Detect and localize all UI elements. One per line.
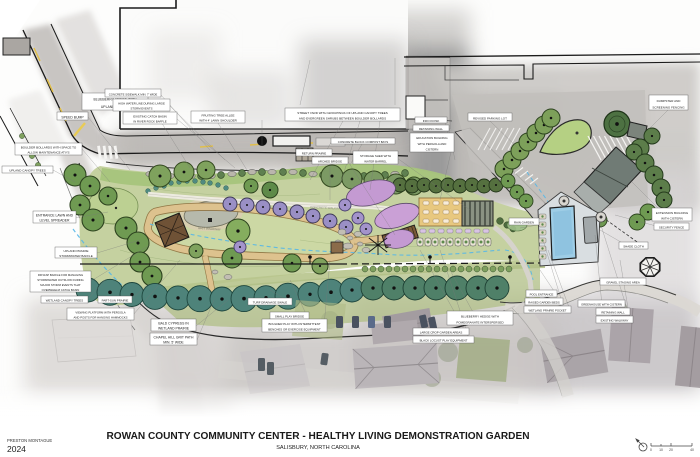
svg-text:WITH 4’ LAWN SHOULDER: WITH 4’ LAWN SHOULDER: [199, 119, 237, 123]
svg-text:UPLAND PRAIRIE: UPLAND PRAIRIE: [63, 249, 88, 253]
svg-text:ROWAN COUNTY COMMUNITY CENTER: ROWAN COUNTY COMMUNITY CENTER - HEALTHY …: [106, 431, 529, 442]
svg-text:10: 10: [659, 448, 663, 452]
svg-text:BENCHES OR EXERCISE EQUIPMENT: BENCHES OR EXERCISE EQUIPMENT: [268, 328, 321, 332]
svg-text:CISTERN: CISTERN: [426, 148, 439, 152]
svg-text:FRUITING TREE ALLEE: FRUITING TREE ALLEE: [202, 114, 235, 118]
svg-text:ALLOW MAINTENANCE ATV’S: ALLOW MAINTENANCE ATV’S: [27, 151, 69, 155]
svg-text:PART-SUN PRAIRIE: PART-SUN PRAIRIE: [102, 299, 129, 303]
svg-text:SMALL PLAY BRIDGE: SMALL PLAY BRIDGE: [275, 315, 304, 319]
svg-text:CONCRETE BLOCK COMPOST BAYS: CONCRETE BLOCK COMPOST BAYS: [338, 140, 389, 144]
svg-text:RETAINING WALL: RETAINING WALL: [601, 311, 625, 315]
svg-text:POMEGRANATE INTERSPERSED: POMEGRANATE INTERSPERSED: [456, 321, 504, 325]
svg-text:MIN. 5’ WIDE: MIN. 5’ WIDE: [163, 341, 184, 345]
svg-text:SPEED BUMP: SPEED BUMP: [61, 116, 84, 120]
svg-text:BLUEBERRY HEDGE WITH: BLUEBERRY HEDGE WITH: [461, 314, 499, 318]
svg-text:OVERWHELM CATCH BASIN: OVERWHELM CATCH BASIN: [42, 288, 80, 292]
svg-text:0: 0: [650, 448, 652, 452]
svg-text:RAISED GARDEN BEDS: RAISED GARDEN BEDS: [528, 301, 560, 305]
svg-text:RETAINING WALL: RETAINING WALL: [419, 127, 443, 131]
svg-text:GRAVEL STAGING AREA: GRAVEL STAGING AREA: [606, 281, 640, 285]
svg-text:BOULDER PLAY WITH INTERMITTENT: BOULDER PLAY WITH INTERMITTENT: [268, 322, 320, 326]
svg-text:EDUCATION BUILDING: EDUCATION BUILDING: [416, 136, 448, 140]
svg-text:TURF DRAINAGE SWALE: TURF DRAINAGE SWALE: [253, 301, 287, 305]
svg-text:EXTENSION BUILDING: EXTENSION BUILDING: [656, 211, 689, 215]
svg-text:WETLAND PRAIRIE: WETLAND PRAIRIE: [158, 327, 190, 331]
svg-text:EXISTING WALKWAY: EXISTING WALKWAY: [601, 319, 629, 323]
svg-text:POOL ENTRANCE: POOL ENTRANCE: [530, 293, 554, 297]
svg-text:40: 40: [690, 448, 694, 452]
svg-text:STORAGE SHED WITH: STORAGE SHED WITH: [360, 154, 391, 158]
svg-text:RETURN PRAIRIE: RETURN PRAIRIE: [302, 152, 326, 156]
svg-text:RAIN GARDEN: RAIN GARDEN: [514, 221, 534, 225]
svg-text:AND EVERGREEN SHRUBS BETWEEN B: AND EVERGREEN SHRUBS BETWEEN BOULDER BOL…: [299, 117, 386, 121]
svg-text:WETLAND CANOPY TREES: WETLAND CANOPY TREES: [46, 299, 84, 303]
svg-text:SHADE CLOTH: SHADE CLOTH: [623, 245, 644, 249]
svg-text:UPLAND CANOPY TREES: UPLAND CANOPY TREES: [9, 169, 45, 173]
svg-text:LEVEL SPREADER: LEVEL SPREADER: [39, 219, 70, 223]
svg-text:BLACK LOCUST PLAY EQUIPMENT: BLACK LOCUST PLAY EQUIPMENT: [420, 339, 468, 343]
svg-text:CONCRETE SIDEWALK MIN. 7’ WIDE: CONCRETE SIDEWALK MIN. 7’ WIDE: [109, 93, 158, 97]
svg-text:SCREENING FENCING: SCREENING FENCING: [652, 105, 685, 109]
svg-text:INFO KIOSK: INFO KIOSK: [423, 119, 440, 123]
svg-text:ENTRANCE LAWN AND: ENTRANCE LAWN AND: [36, 214, 74, 218]
svg-text:PRESTON MONTAGUE: PRESTON MONTAGUE: [7, 438, 52, 443]
svg-text:MAJOR STORM EVENTS THAT: MAJOR STORM EVENTS THAT: [40, 283, 81, 287]
svg-text:WETLAND PRAIRIE POCKET: WETLAND PRAIRIE POCKET: [529, 309, 567, 313]
svg-text:VIEWING PLATFORM WITH PERGOLA: VIEWING PLATFORM WITH PERGOLA: [75, 311, 125, 315]
svg-text:ARCHED BRIDGE: ARCHED BRIDGE: [318, 160, 342, 164]
svg-text:WATER BARREL: WATER BARREL: [364, 160, 387, 164]
svg-text:IN RIVER ROCK BAFFLE: IN RIVER ROCK BAFFLE: [133, 120, 166, 124]
svg-text:DUMPSTER AND: DUMPSTER AND: [657, 99, 682, 103]
svg-text:AND POSTS FOR HANGING HAMMOCKS: AND POSTS FOR HANGING HAMMOCKS: [74, 316, 128, 320]
svg-text:STORM EVENTS: STORM EVENTS: [130, 107, 152, 111]
svg-text:RIP-RAP BAFFLE FOR MANAGING: RIP-RAP BAFFLE FOR MANAGING: [38, 273, 83, 277]
svg-text:WITH PERGOLA AND: WITH PERGOLA AND: [418, 142, 447, 146]
svg-text:STREET YARD WITH GROUPINGS OF: STREET YARD WITH GROUPINGS OF UPLAND CAN…: [297, 111, 388, 115]
svg-text:CHAPEL HILL GRIT PATH: CHAPEL HILL GRIT PATH: [154, 336, 194, 340]
svg-text:2024: 2024: [7, 444, 26, 454]
svg-text:LARGE CROP GARDEN AREAS: LARGE CROP GARDEN AREAS: [420, 331, 463, 335]
svg-text:HIGH WATER LINE DURING LARGE: HIGH WATER LINE DURING LARGE: [118, 102, 165, 106]
svg-text:WITH CISTERN: WITH CISTERN: [661, 217, 683, 221]
svg-text:SALISBURY, NORTH CAROLINA: SALISBURY, NORTH CAROLINA: [276, 445, 360, 451]
svg-text:20: 20: [669, 448, 673, 452]
svg-text:STORMWATER OUTFLOW DURING: STORMWATER OUTFLOW DURING: [37, 278, 83, 282]
svg-text:GREENHOUSE WITH CISTERN: GREENHOUSE WITH CISTERN: [581, 303, 622, 307]
svg-text:BALD CYPRESS IN: BALD CYPRESS IN: [158, 322, 189, 326]
svg-text:BOULDER BOLLARDS WITH SPACE TO: BOULDER BOLLARDS WITH SPACE TO: [21, 146, 77, 150]
svg-text:EXISTING CATCH BASIN: EXISTING CATCH BASIN: [133, 115, 167, 119]
svg-text:REVISED PARKING LOT: REVISED PARKING LOT: [473, 117, 507, 121]
svg-text:SECURITY FENCE: SECURITY FENCE: [659, 226, 684, 230]
svg-text:STORMWATER BAFFLE: STORMWATER BAFFLE: [59, 254, 92, 258]
